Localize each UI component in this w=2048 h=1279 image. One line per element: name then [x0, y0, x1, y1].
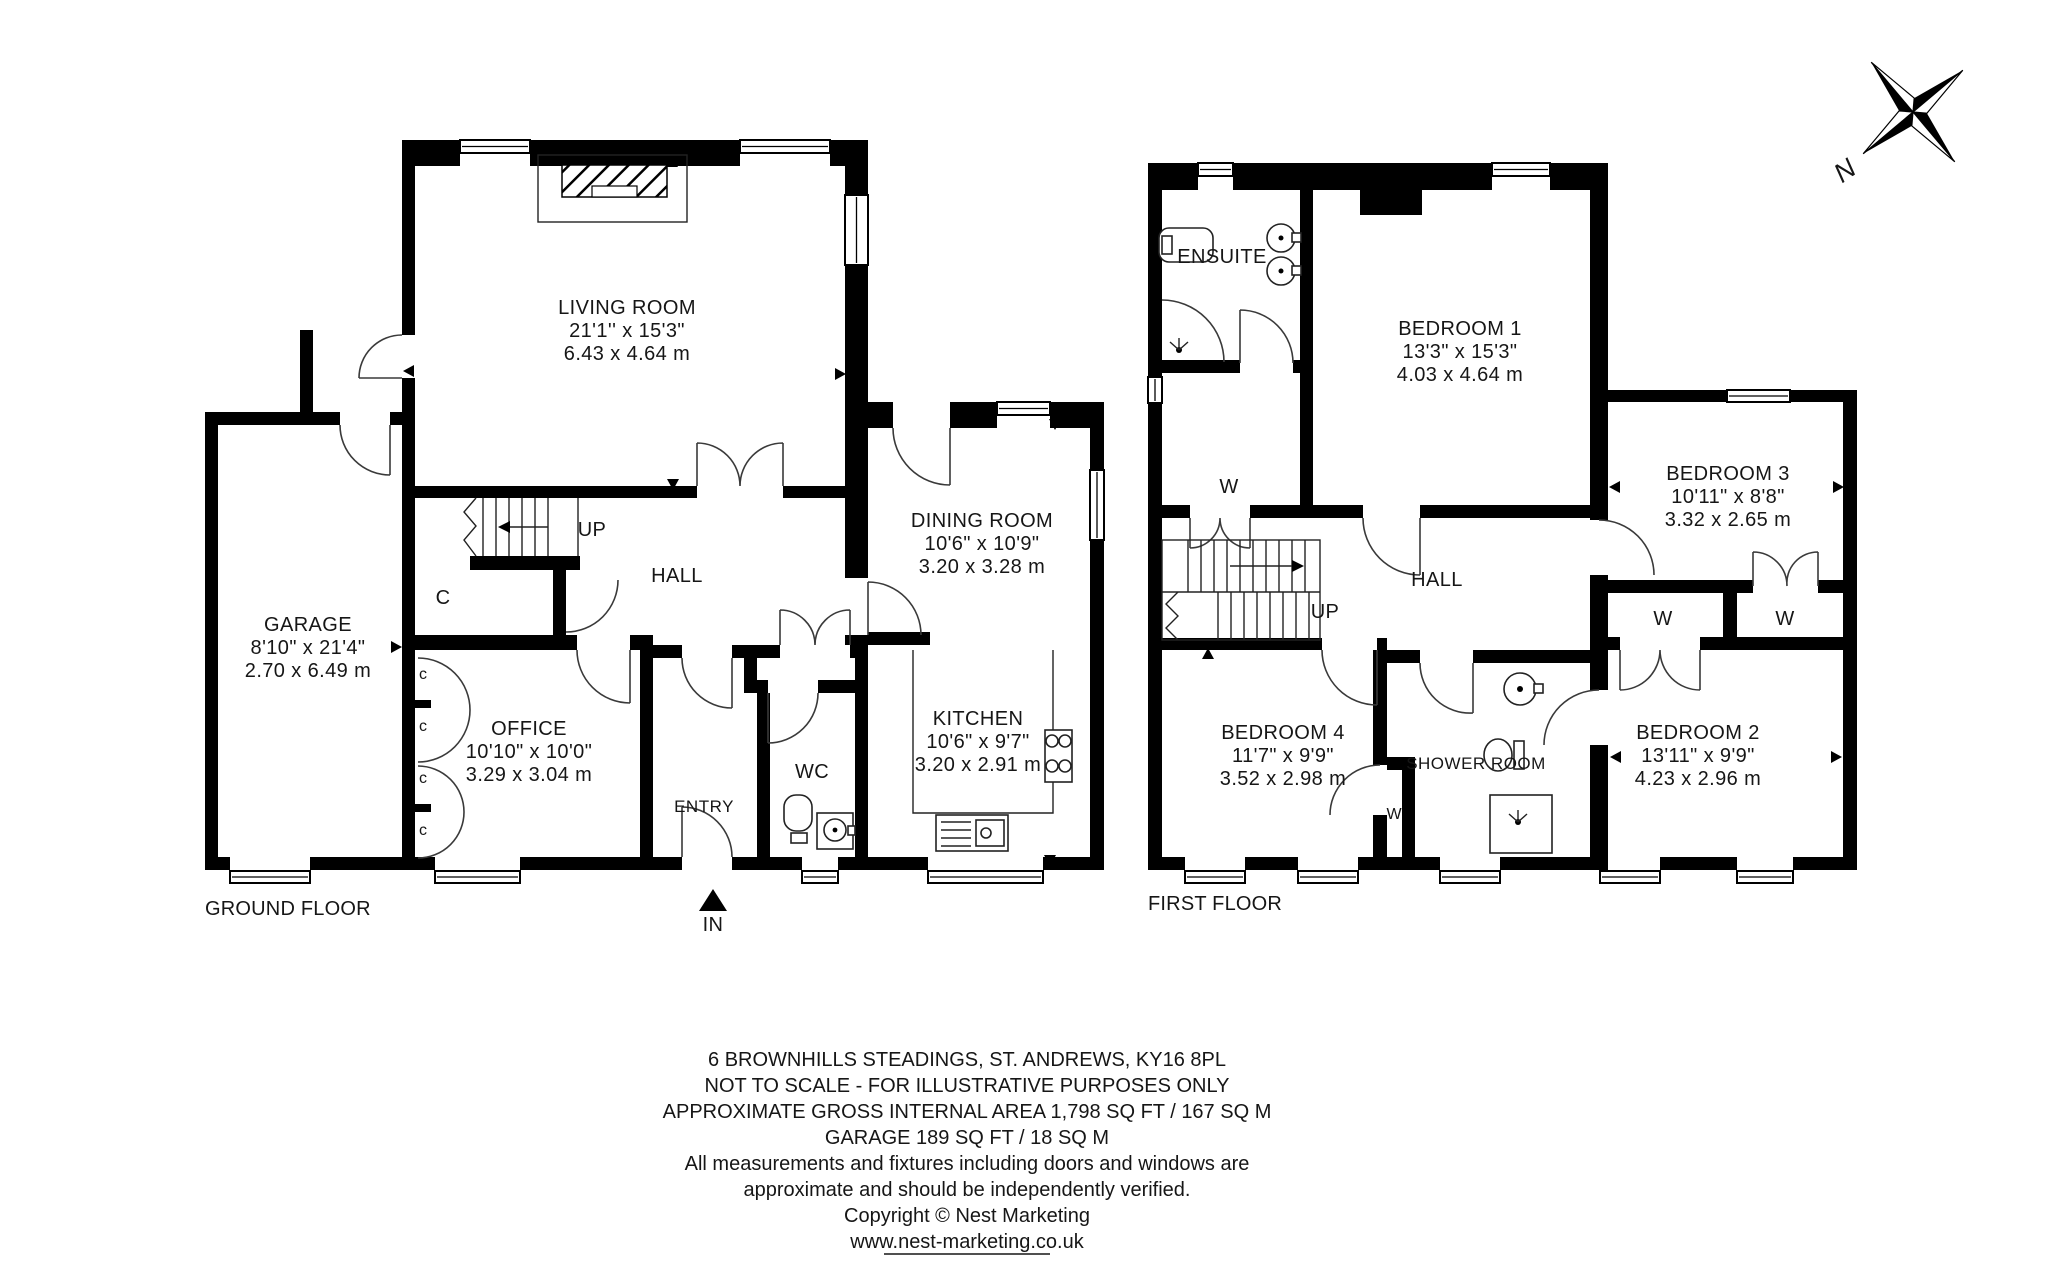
closet-small-label: c	[419, 770, 427, 787]
room-label-bedroom3-imperial: 10'11" x 8'8"	[1671, 486, 1784, 508]
room-label-bedroom1-imperial: 13'3" x 15'3"	[1403, 341, 1518, 363]
room-label-shower-room: SHOWER ROOM	[1406, 754, 1546, 773]
wardrobe-label: W	[1653, 608, 1672, 630]
room-label-garage-name: GARAGE	[264, 614, 352, 636]
footer-disclaimer-2: approximate and should be independently …	[744, 1179, 1191, 1201]
room-label-hall-first: HALL	[1411, 569, 1463, 591]
ground-floor-caption: GROUND FLOOR	[205, 898, 371, 920]
stairs-up-label-first: UP	[1311, 601, 1340, 623]
room-label-dining-imperial: 10'6" x 10'9"	[925, 533, 1040, 555]
room-label-ensuite: ENSUITE	[1177, 246, 1266, 268]
footer-address: 6 BROWNHILLS STEADINGS, ST. ANDREWS, KY1…	[708, 1049, 1226, 1071]
room-label-living-metric: 6.43 x 4.64 m	[564, 343, 690, 365]
stairs-up-label-ground: UP	[578, 519, 607, 541]
footer-website-link[interactable]: www.nest-marketing.co.uk	[849, 1231, 1084, 1253]
entrance-arrow	[699, 889, 727, 911]
room-label-wc: WC	[795, 761, 829, 783]
room-label-living-imperial: 21'1'' x 15'3"	[569, 320, 685, 342]
room-label-kitchen-metric: 3.20 x 2.91 m	[915, 754, 1041, 776]
first-stairs	[1162, 540, 1320, 640]
compass-rose: N	[1828, 62, 1963, 188]
footer-notes: 6 BROWNHILLS STEADINGS, ST. ANDREWS, KY1…	[663, 1049, 1272, 1254]
room-label-bedroom2-metric: 4.23 x 2.96 m	[1635, 768, 1761, 790]
room-label-garage-imperial: 8'10" x 21'4"	[251, 637, 366, 659]
room-label-dining-metric: 3.20 x 3.28 m	[919, 556, 1045, 578]
stair-direction-arrow	[498, 521, 510, 533]
footer-disclaimer-1: All measurements and fixtures including …	[685, 1153, 1250, 1175]
room-label-office-name: OFFICE	[491, 718, 567, 740]
room-label-kitchen-imperial: 10'6" x 9'7"	[926, 731, 1029, 753]
footer-copyright: Copyright © Nest Marketing	[844, 1205, 1090, 1227]
room-label-garage-metric: 2.70 x 6.49 m	[245, 660, 371, 682]
room-label-kitchen-name: KITCHEN	[933, 708, 1024, 730]
wardrobe-label: W	[1219, 476, 1238, 498]
room-label-office-metric: 3.29 x 3.04 m	[466, 764, 592, 786]
first-floor-caption: FIRST FLOOR	[1148, 893, 1282, 915]
room-label-bedroom4-name: BEDROOM 4	[1221, 722, 1345, 744]
closet-label: C	[436, 587, 451, 609]
room-label-office-imperial: 10'10" x 10'0"	[466, 741, 592, 763]
ground-stairs	[464, 498, 578, 556]
footer-garage-area: GARAGE 189 SQ FT / 18 SQ M	[825, 1127, 1109, 1149]
stair-direction-arrow	[1292, 560, 1304, 572]
floorplan-canvas: LIVING ROOM 21'1'' x 15'3" 6.43 x 4.64 m…	[0, 0, 2048, 1279]
entrance-in-label: IN	[703, 914, 724, 936]
ensuite-fixtures	[1159, 224, 1301, 353]
closet-small-label: c	[419, 718, 427, 735]
shower-tray	[1490, 795, 1552, 853]
toilet	[784, 795, 812, 831]
closet-small-label: c	[419, 666, 427, 683]
ground-labels: LIVING ROOM 21'1'' x 15'3" 6.43 x 4.64 m…	[205, 297, 1053, 936]
room-label-bedroom2-imperial: 13'11" x 9'9"	[1641, 745, 1754, 767]
first-floor-plan: BEDROOM 1 13'3" x 15'3" 4.03 x 4.64 m BE…	[1148, 163, 1857, 915]
wardrobe-label: W	[1775, 608, 1794, 630]
room-label-bedroom3-metric: 3.32 x 2.65 m	[1665, 509, 1791, 531]
wardrobe-label: W	[1386, 806, 1402, 823]
wc-fixtures	[784, 795, 855, 849]
closet-small-label: c	[419, 822, 427, 839]
footer-not-to-scale: NOT TO SCALE - FOR ILLUSTRATIVE PURPOSES…	[705, 1075, 1230, 1097]
room-label-bedroom1-name: BEDROOM 1	[1398, 318, 1522, 340]
room-label-living-name: LIVING ROOM	[558, 297, 696, 319]
room-label-entry: ENTRY	[674, 797, 734, 816]
room-label-bedroom2-name: BEDROOM 2	[1636, 722, 1760, 744]
north-label: N	[1828, 152, 1862, 188]
footer-internal-area: APPROXIMATE GROSS INTERNAL AREA 1,798 SQ…	[663, 1101, 1272, 1123]
ground-floor-plan: LIVING ROOM 21'1'' x 15'3" 6.43 x 4.64 m…	[205, 140, 1104, 936]
room-label-hall-ground: HALL	[651, 565, 703, 587]
room-label-bedroom4-metric: 3.52 x 2.98 m	[1220, 768, 1346, 790]
room-label-dining-name: DINING ROOM	[911, 510, 1053, 532]
shower-head-icon	[1170, 338, 1188, 353]
room-label-bedroom3-name: BEDROOM 3	[1666, 463, 1790, 485]
room-label-bedroom4-imperial: 11'7" x 9'9"	[1232, 745, 1334, 767]
room-label-bedroom1-metric: 4.03 x 4.64 m	[1397, 364, 1523, 386]
